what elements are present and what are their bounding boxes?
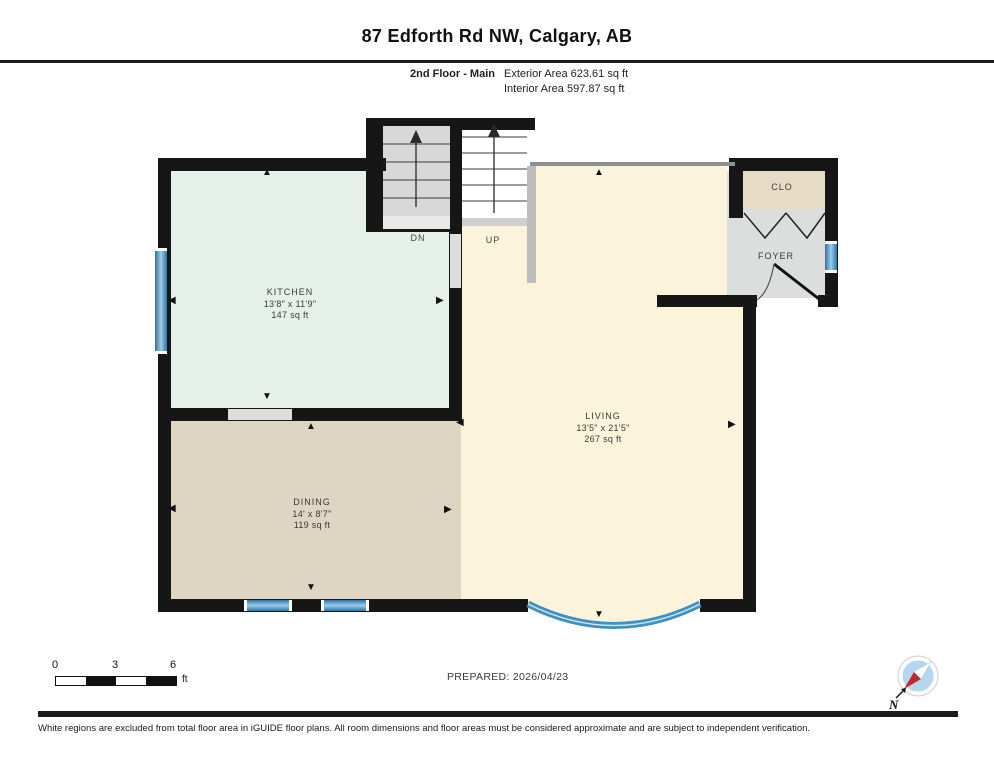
scale-unit: ft [182,674,188,685]
dining-label: DINING 14' x 8'7" 119 sq ft [252,497,372,532]
wall-kitchen-top [158,158,386,171]
stairs-up [462,118,527,222]
dining-name: DINING [252,497,372,509]
stairs-down [383,126,450,216]
stairs-up-threshold [462,218,527,226]
closet-name: CLO [752,182,812,194]
dimension-arrow-icon: ▼ [306,583,316,593]
dining-window-2 [321,600,369,611]
dimension-arrow-icon: ◀ [456,418,464,428]
wall-living-bottom-right [700,599,756,612]
living-label: LIVING 13'5" x 21'5" 267 sq ft [543,411,663,446]
wall-living-bottom-left [461,599,528,612]
compass-north-label: N [888,697,899,712]
foyer-name: FOYER [741,251,811,263]
dining-window-1 [244,600,292,611]
page-title: 87 Edforth Rd NW, Calgary, AB [0,26,994,47]
wall-entry-stub [657,295,757,307]
living-floor-right-strip [727,305,744,610]
floor-label: 2nd Floor - Main [300,68,495,80]
wall-closet-top [729,158,838,171]
living-area: 267 sq ft [543,434,663,446]
opening-kitchen-dining [228,409,292,420]
kitchen-window [155,248,167,354]
scale-segment [146,677,176,685]
scale-tick-6: 6 [166,659,180,671]
stairs-down-landing [383,216,450,229]
scale-segment [56,677,86,685]
stairs-down-label: DN [398,233,438,243]
dining-area: 119 sq ft [252,520,372,532]
dimension-arrow-icon: ◀ [168,296,176,306]
living-floor [461,166,727,610]
disclaimer-text: White regions are excluded from total fl… [38,723,958,734]
wall-dining-bottom [158,599,462,612]
scale-tick-3: 3 [108,659,122,671]
wall-living-right [743,300,756,612]
dimension-arrow-icon: ▼ [262,392,272,402]
dimension-arrow-icon: ▶ [728,420,736,430]
dimension-arrow-icon: ▲ [262,168,272,178]
header-divider [0,60,994,63]
wall-stairs-top [455,118,535,130]
interior-area: Interior Area 597.87 sq ft [504,83,624,95]
foyer-label: FOYER [741,251,811,263]
living-dims: 13'5" x 21'5" [543,423,663,435]
stair-railing [527,166,536,283]
prepared-date: PREPARED: 2026/04/23 [447,671,568,683]
stairs-up-label: UP [473,235,513,245]
compass-icon: N [888,650,946,712]
foyer-window [825,241,837,273]
living-name: LIVING [543,411,663,423]
opening-kitchen-living [450,234,461,288]
wall-closet-left [729,158,743,218]
kitchen-area: 147 sq ft [230,310,350,322]
wall-left [158,158,171,612]
scale-segment [116,677,146,685]
kitchen-dims: 13'8" x 11'9" [230,299,350,311]
scale-bar [55,676,177,686]
scale-tick-0: 0 [48,659,62,671]
dimension-arrow-icon: ▶ [444,505,452,515]
wall-foyer-right [825,158,838,307]
kitchen-label: KITCHEN 13'8" x 11'9" 147 sq ft [230,287,350,322]
exterior-area: Exterior Area 623.61 sq ft [504,68,628,80]
dimension-arrow-icon: ▲ [594,168,604,178]
dimension-arrow-icon: ▶ [436,296,444,306]
floor-plan-page: 87 Edforth Rd NW, Calgary, AB 2nd Floor … [0,0,994,768]
dining-dims: 14' x 8'7" [252,509,372,521]
living-top-boundary-line [530,162,735,166]
wall-door-jamb [818,295,838,307]
scale-segment [86,677,116,685]
closet-label: CLO [752,182,812,194]
dimension-arrow-icon: ▼ [594,610,604,620]
footer-divider [38,711,958,717]
wall-kitchen-dining [158,408,462,421]
kitchen-name: KITCHEN [230,287,350,299]
dimension-arrow-icon: ◀ [168,504,176,514]
dimension-arrow-icon: ▲ [306,422,316,432]
